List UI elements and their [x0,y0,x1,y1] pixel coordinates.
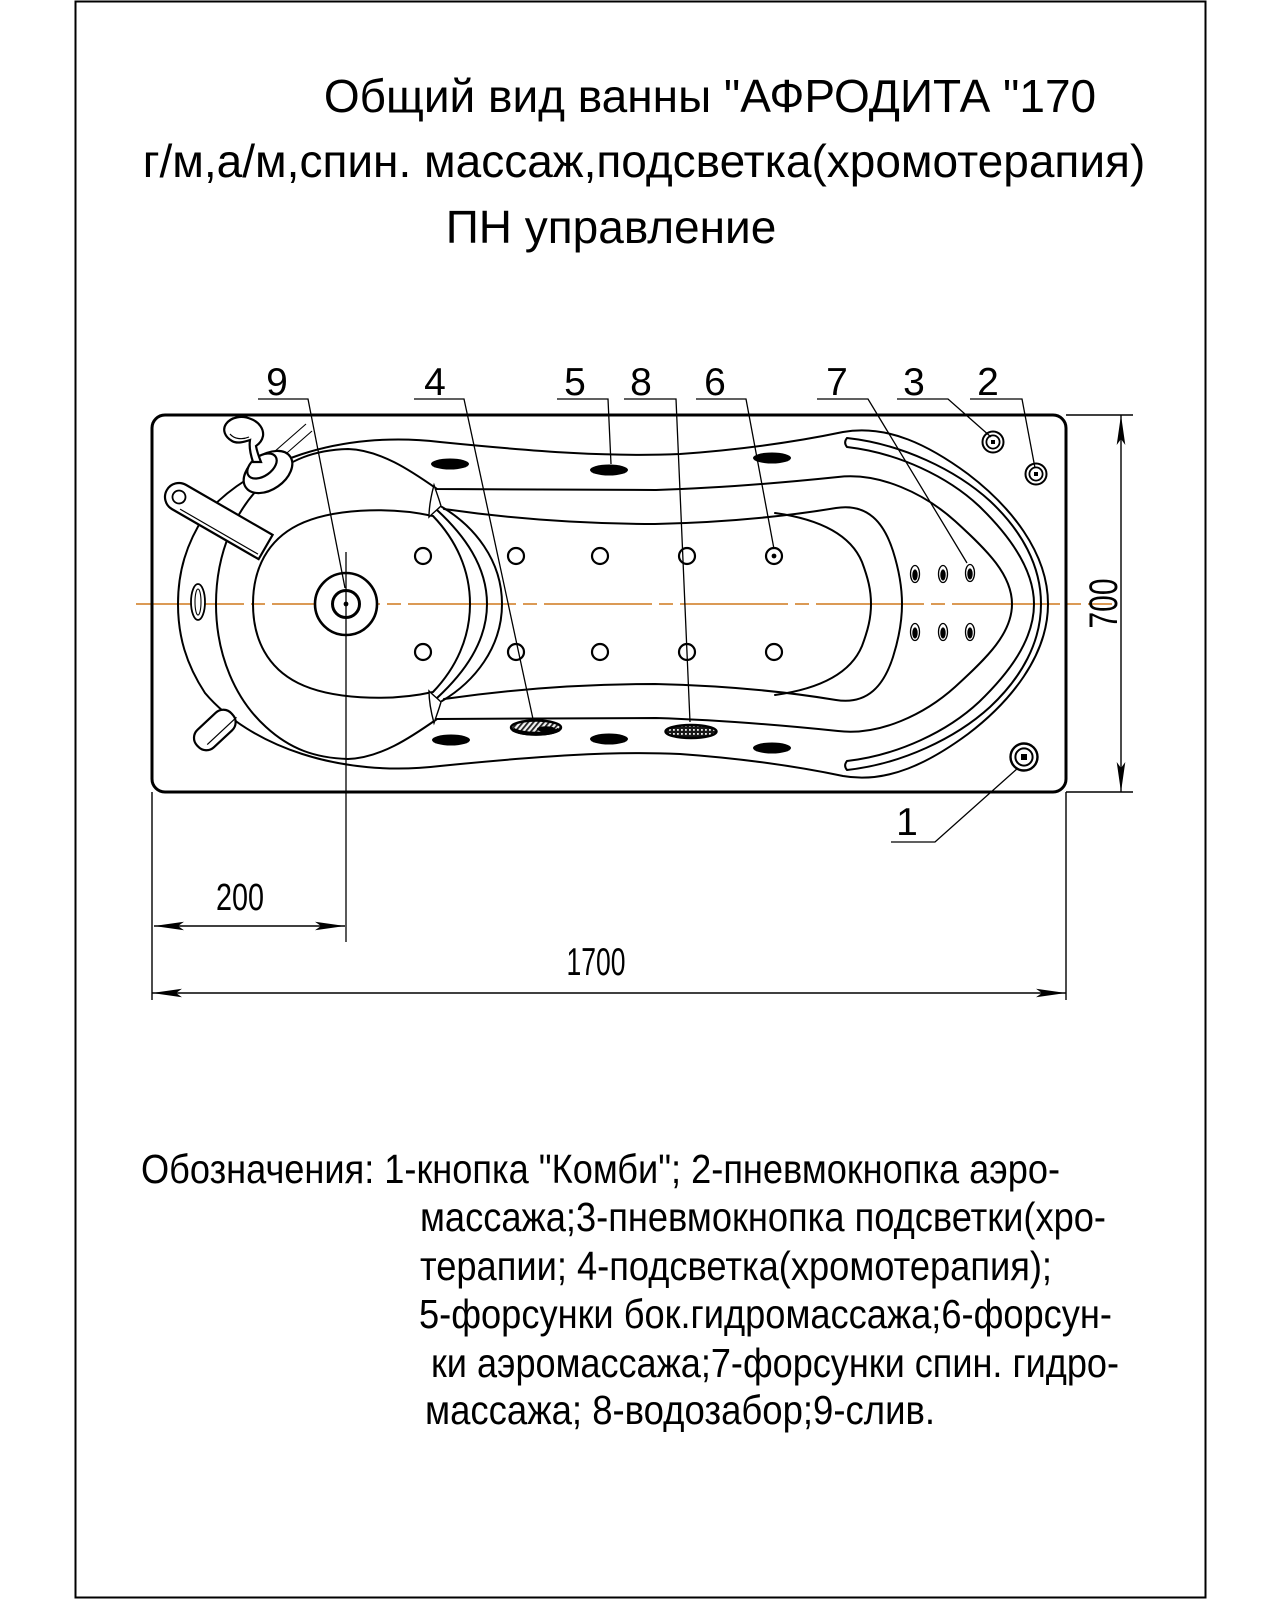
svg-text:ки аэромассажа;7-форсунки спин: ки аэромассажа;7-форсунки спин. гидро- [431,1340,1119,1386]
svg-text:3: 3 [903,361,925,404]
svg-text:г/м,а/м,спин. массаж,подсветка: г/м,а/м,спин. массаж,подсветка(хромотера… [143,135,1146,187]
svg-text:9: 9 [266,361,288,404]
svg-text:Обозначения: 1-кнопка "Комби";: Обозначения: 1-кнопка "Комби"; 2-пневмок… [141,1146,1060,1192]
svg-text:терапии; 4-подсветка(хромотера: терапии; 4-подсветка(хромотерапия); [420,1243,1052,1289]
svg-text:6: 6 [704,361,726,404]
svg-text:Общий вид ванны "АФРОДИТА "170: Общий вид ванны "АФРОДИТА "170 [324,70,1096,122]
svg-text:ПН управление: ПН управление [446,201,777,253]
svg-text:5-форсунки бок.гидромассажа;6-: 5-форсунки бок.гидромассажа;6-форсун- [419,1291,1112,1337]
svg-text:массажа; 8-водозабор;9-слив.: массажа; 8-водозабор;9-слив. [425,1387,935,1433]
svg-text:1: 1 [896,801,918,844]
svg-text:2: 2 [977,361,999,404]
svg-text:5: 5 [564,361,586,404]
svg-text:4: 4 [424,361,446,404]
svg-text:7: 7 [826,361,848,404]
svg-text:700: 700 [1082,579,1126,629]
svg-text:8: 8 [630,361,652,404]
svg-text:200: 200 [216,877,264,919]
svg-text:массажа;3-пневмокнопка подсвет: массажа;3-пневмокнопка подсветки(хро- [420,1194,1106,1240]
svg-text:1700: 1700 [567,941,626,984]
